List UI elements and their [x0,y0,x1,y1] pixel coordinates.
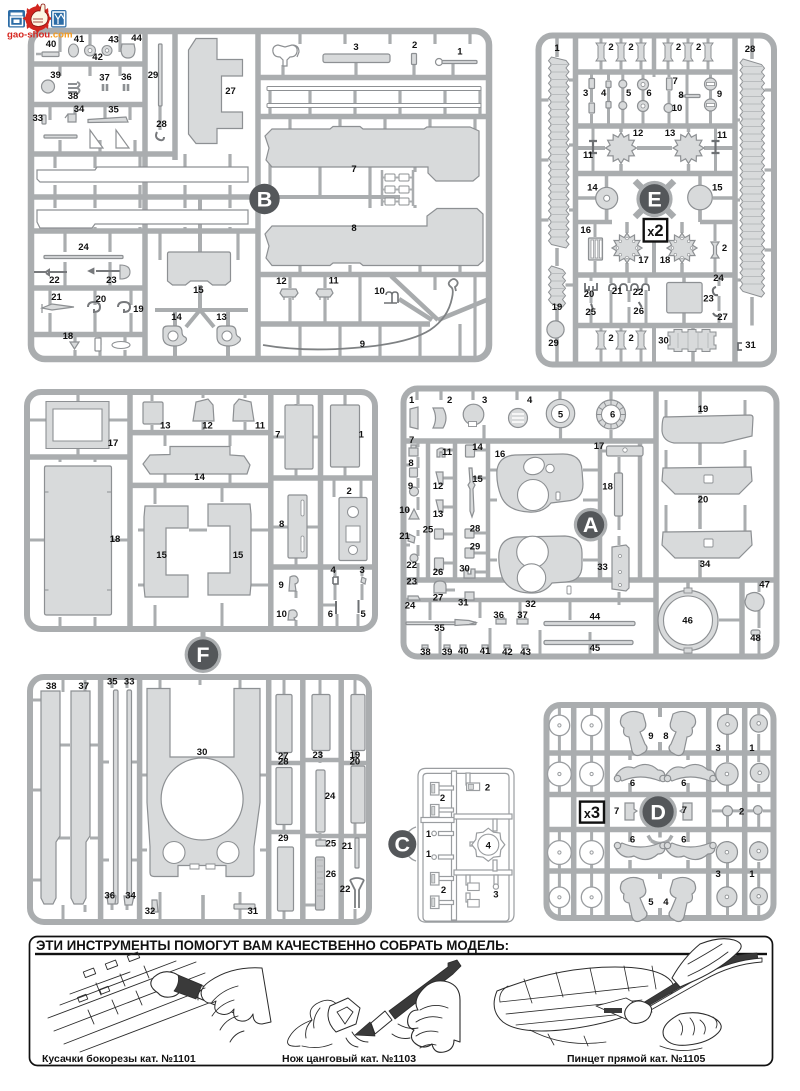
svg-text:6: 6 [630,835,635,846]
svg-text:2: 2 [739,807,744,818]
svg-text:28: 28 [470,524,481,535]
svg-text:15: 15 [193,285,204,296]
svg-text:4: 4 [601,88,607,99]
svg-text:2: 2 [347,486,352,497]
svg-text:16: 16 [580,225,591,236]
svg-text:30: 30 [459,564,470,575]
svg-text:3: 3 [583,88,588,99]
svg-text:23: 23 [106,275,117,286]
svg-text:12: 12 [633,128,644,139]
svg-text:4: 4 [331,565,337,576]
svg-text:2: 2 [441,885,446,896]
svg-text:22: 22 [406,560,417,571]
svg-text:32: 32 [525,599,536,610]
svg-text:42: 42 [92,52,103,63]
svg-text:23: 23 [406,577,417,588]
svg-text:B: B [257,188,273,212]
svg-text:8: 8 [279,519,284,530]
svg-text:14: 14 [171,312,182,323]
svg-text:11: 11 [717,130,728,141]
svg-text:1: 1 [359,430,365,441]
svg-text:13: 13 [160,421,171,432]
svg-text:27: 27 [433,593,444,604]
svg-text:6: 6 [646,88,651,99]
svg-text:F: F [196,643,209,667]
svg-text:14: 14 [472,442,483,453]
svg-text:1: 1 [457,46,463,57]
svg-text:25: 25 [585,307,596,318]
svg-text:22: 22 [49,275,60,286]
svg-text:35: 35 [434,623,445,634]
svg-text:41: 41 [74,34,85,45]
svg-text:26: 26 [633,306,644,317]
svg-text:37: 37 [99,73,110,84]
svg-text:21: 21 [612,286,623,297]
svg-text:2: 2 [608,333,613,344]
svg-text:46: 46 [682,616,693,627]
svg-text:37: 37 [78,681,89,692]
svg-text:13: 13 [665,128,676,139]
svg-text:6: 6 [630,778,635,789]
svg-text:6: 6 [681,778,686,789]
svg-text:15: 15 [712,183,723,194]
svg-text:1: 1 [426,849,432,860]
svg-text:39: 39 [442,647,453,658]
svg-text:12: 12 [202,421,213,432]
svg-text:5: 5 [626,88,632,99]
svg-text:21: 21 [342,841,353,852]
svg-text:A: A [583,513,599,537]
svg-text:27: 27 [225,86,236,97]
svg-text:1: 1 [426,829,432,840]
svg-text:3: 3 [715,743,720,754]
svg-text:11: 11 [329,276,340,287]
svg-text:7: 7 [682,805,687,816]
svg-text:9: 9 [278,580,283,591]
svg-text:11: 11 [583,150,594,161]
svg-text:9: 9 [648,731,653,742]
svg-text:9: 9 [360,339,365,350]
svg-text:33: 33 [33,113,44,124]
svg-text:8: 8 [663,731,668,742]
svg-text:26: 26 [433,567,444,578]
svg-text:45: 45 [590,643,601,654]
svg-text:24: 24 [713,273,724,284]
svg-text:x2: x2 [647,222,663,240]
svg-text:2: 2 [447,395,452,406]
svg-text:19: 19 [698,404,709,415]
svg-text:14: 14 [194,472,205,483]
svg-text:15: 15 [233,550,244,561]
svg-text:41: 41 [480,646,491,657]
svg-text:13: 13 [433,509,444,520]
svg-text:34: 34 [125,891,136,902]
svg-text:20: 20 [698,495,709,506]
svg-text:6: 6 [328,609,333,620]
svg-text:34: 34 [700,559,711,570]
svg-text:40: 40 [458,646,469,657]
svg-text:42: 42 [502,647,513,658]
svg-text:11: 11 [442,447,453,458]
svg-text:10: 10 [399,505,410,516]
svg-text:21: 21 [399,531,410,542]
svg-text:29: 29 [548,338,559,349]
svg-text:3: 3 [353,42,358,53]
svg-text:44: 44 [131,33,142,44]
svg-text:36: 36 [121,72,132,83]
svg-text:C: C [395,833,411,857]
svg-text:7: 7 [275,430,280,441]
svg-text:2: 2 [629,333,634,344]
svg-text:38: 38 [420,647,431,658]
svg-text:38: 38 [46,681,57,692]
svg-text:23: 23 [313,750,324,761]
svg-text:2: 2 [608,42,613,53]
svg-text:ЭТИ ИНСТРУМЕНТЫ ПОМОГУТ ВАМ КА: ЭТИ ИНСТРУМЕНТЫ ПОМОГУТ ВАМ КАЧЕСТВЕННО … [36,938,509,953]
svg-text:2: 2 [722,243,727,254]
svg-text:31: 31 [248,906,259,917]
svg-text:39: 39 [50,70,61,81]
svg-text:1: 1 [409,395,415,406]
svg-text:47: 47 [759,580,770,591]
svg-text:1: 1 [749,743,755,754]
svg-text:1: 1 [554,43,560,54]
svg-text:31: 31 [745,340,756,351]
svg-text:3: 3 [493,890,498,901]
svg-text:15: 15 [472,474,483,485]
svg-text:3: 3 [715,869,720,880]
svg-text:15: 15 [156,550,167,561]
svg-text:18: 18 [110,534,121,545]
svg-text:34: 34 [74,104,85,115]
svg-text:29: 29 [470,542,481,553]
svg-text:5: 5 [558,410,564,421]
svg-text:13: 13 [216,312,227,323]
svg-text:18: 18 [660,255,671,266]
svg-text:20: 20 [350,757,361,768]
svg-text:48: 48 [750,633,761,644]
svg-text:9: 9 [408,481,413,492]
svg-text:28: 28 [278,757,289,768]
svg-text:19: 19 [133,304,144,315]
svg-text:33: 33 [124,677,135,688]
svg-text:24: 24 [78,242,89,253]
svg-text:1: 1 [749,869,755,880]
svg-text:5: 5 [361,609,367,620]
svg-text:3: 3 [482,395,487,406]
svg-text:4: 4 [486,840,492,851]
svg-text:33: 33 [597,562,608,573]
svg-text:32: 32 [145,906,156,917]
svg-text:29: 29 [278,833,289,844]
svg-text:22: 22 [633,287,644,298]
svg-text:11: 11 [255,421,266,432]
svg-text:8: 8 [408,458,413,469]
svg-text:10: 10 [374,286,385,297]
svg-text:8: 8 [351,223,356,234]
svg-text:43: 43 [108,34,119,45]
svg-text:35: 35 [107,677,118,688]
svg-text:12: 12 [433,481,444,492]
svg-text:10: 10 [276,609,287,620]
svg-text:20: 20 [96,294,107,305]
svg-text:38: 38 [68,91,79,102]
svg-text:36: 36 [104,891,115,902]
svg-text:16: 16 [495,449,506,460]
svg-text:7: 7 [351,164,356,175]
svg-text:4: 4 [527,395,533,406]
svg-text:37: 37 [517,610,528,621]
svg-text:7: 7 [672,76,677,87]
svg-text:22: 22 [340,884,351,895]
svg-text:Нож цанговый кат. №1103: Нож цанговый кат. №1103 [282,1053,416,1065]
svg-text:20: 20 [584,289,595,300]
svg-text:10: 10 [672,103,683,114]
svg-text:30: 30 [197,747,208,758]
svg-text:29: 29 [148,70,159,81]
svg-text:31: 31 [458,598,469,609]
svg-text:6: 6 [681,835,686,846]
svg-text:7: 7 [409,435,414,446]
svg-text:24: 24 [405,601,416,612]
svg-text:21: 21 [51,292,62,303]
svg-text:2: 2 [412,40,417,51]
svg-text:2: 2 [485,783,490,794]
svg-text:43: 43 [520,647,531,658]
svg-text:28: 28 [745,44,756,55]
svg-text:30: 30 [658,336,669,347]
svg-text:7: 7 [614,806,619,817]
svg-text:2: 2 [628,42,633,53]
svg-text:14: 14 [587,183,598,194]
svg-text:E: E [647,188,661,212]
svg-text:36: 36 [493,610,504,621]
svg-text:2: 2 [676,42,681,53]
svg-text:23: 23 [703,294,714,305]
svg-text:35: 35 [108,105,119,116]
svg-text:8: 8 [678,90,683,101]
svg-text:2: 2 [440,793,445,804]
svg-text:26: 26 [326,869,337,880]
svg-text:28: 28 [156,119,167,130]
svg-text:17: 17 [638,255,649,266]
svg-text:9: 9 [717,89,722,100]
svg-text:18: 18 [602,482,613,493]
svg-text:5: 5 [648,897,654,908]
svg-text:17: 17 [594,441,605,452]
svg-text:17: 17 [108,438,119,449]
svg-text:19: 19 [552,302,563,313]
svg-text:12: 12 [276,276,287,287]
svg-text:3: 3 [360,565,365,576]
svg-text:18: 18 [63,331,74,342]
svg-text:25: 25 [423,525,434,536]
svg-text:40: 40 [46,39,57,50]
svg-text:4: 4 [663,897,669,908]
svg-text:44: 44 [590,612,601,623]
svg-text:2: 2 [696,42,701,53]
svg-text:25: 25 [326,839,337,850]
svg-text:Пинцет прямой кат. №1105: Пинцет прямой кат. №1105 [567,1053,706,1065]
svg-text:27: 27 [717,312,728,323]
svg-text:6: 6 [610,410,615,421]
svg-text:Кусачки бокорезы кат. №1101: Кусачки бокорезы кат. №1101 [42,1053,196,1065]
svg-text:D: D [650,800,666,824]
svg-text:gao-shou.com: gao-shou.com [7,30,73,41]
svg-text:24: 24 [325,791,336,802]
svg-text:x3: x3 [584,804,600,822]
